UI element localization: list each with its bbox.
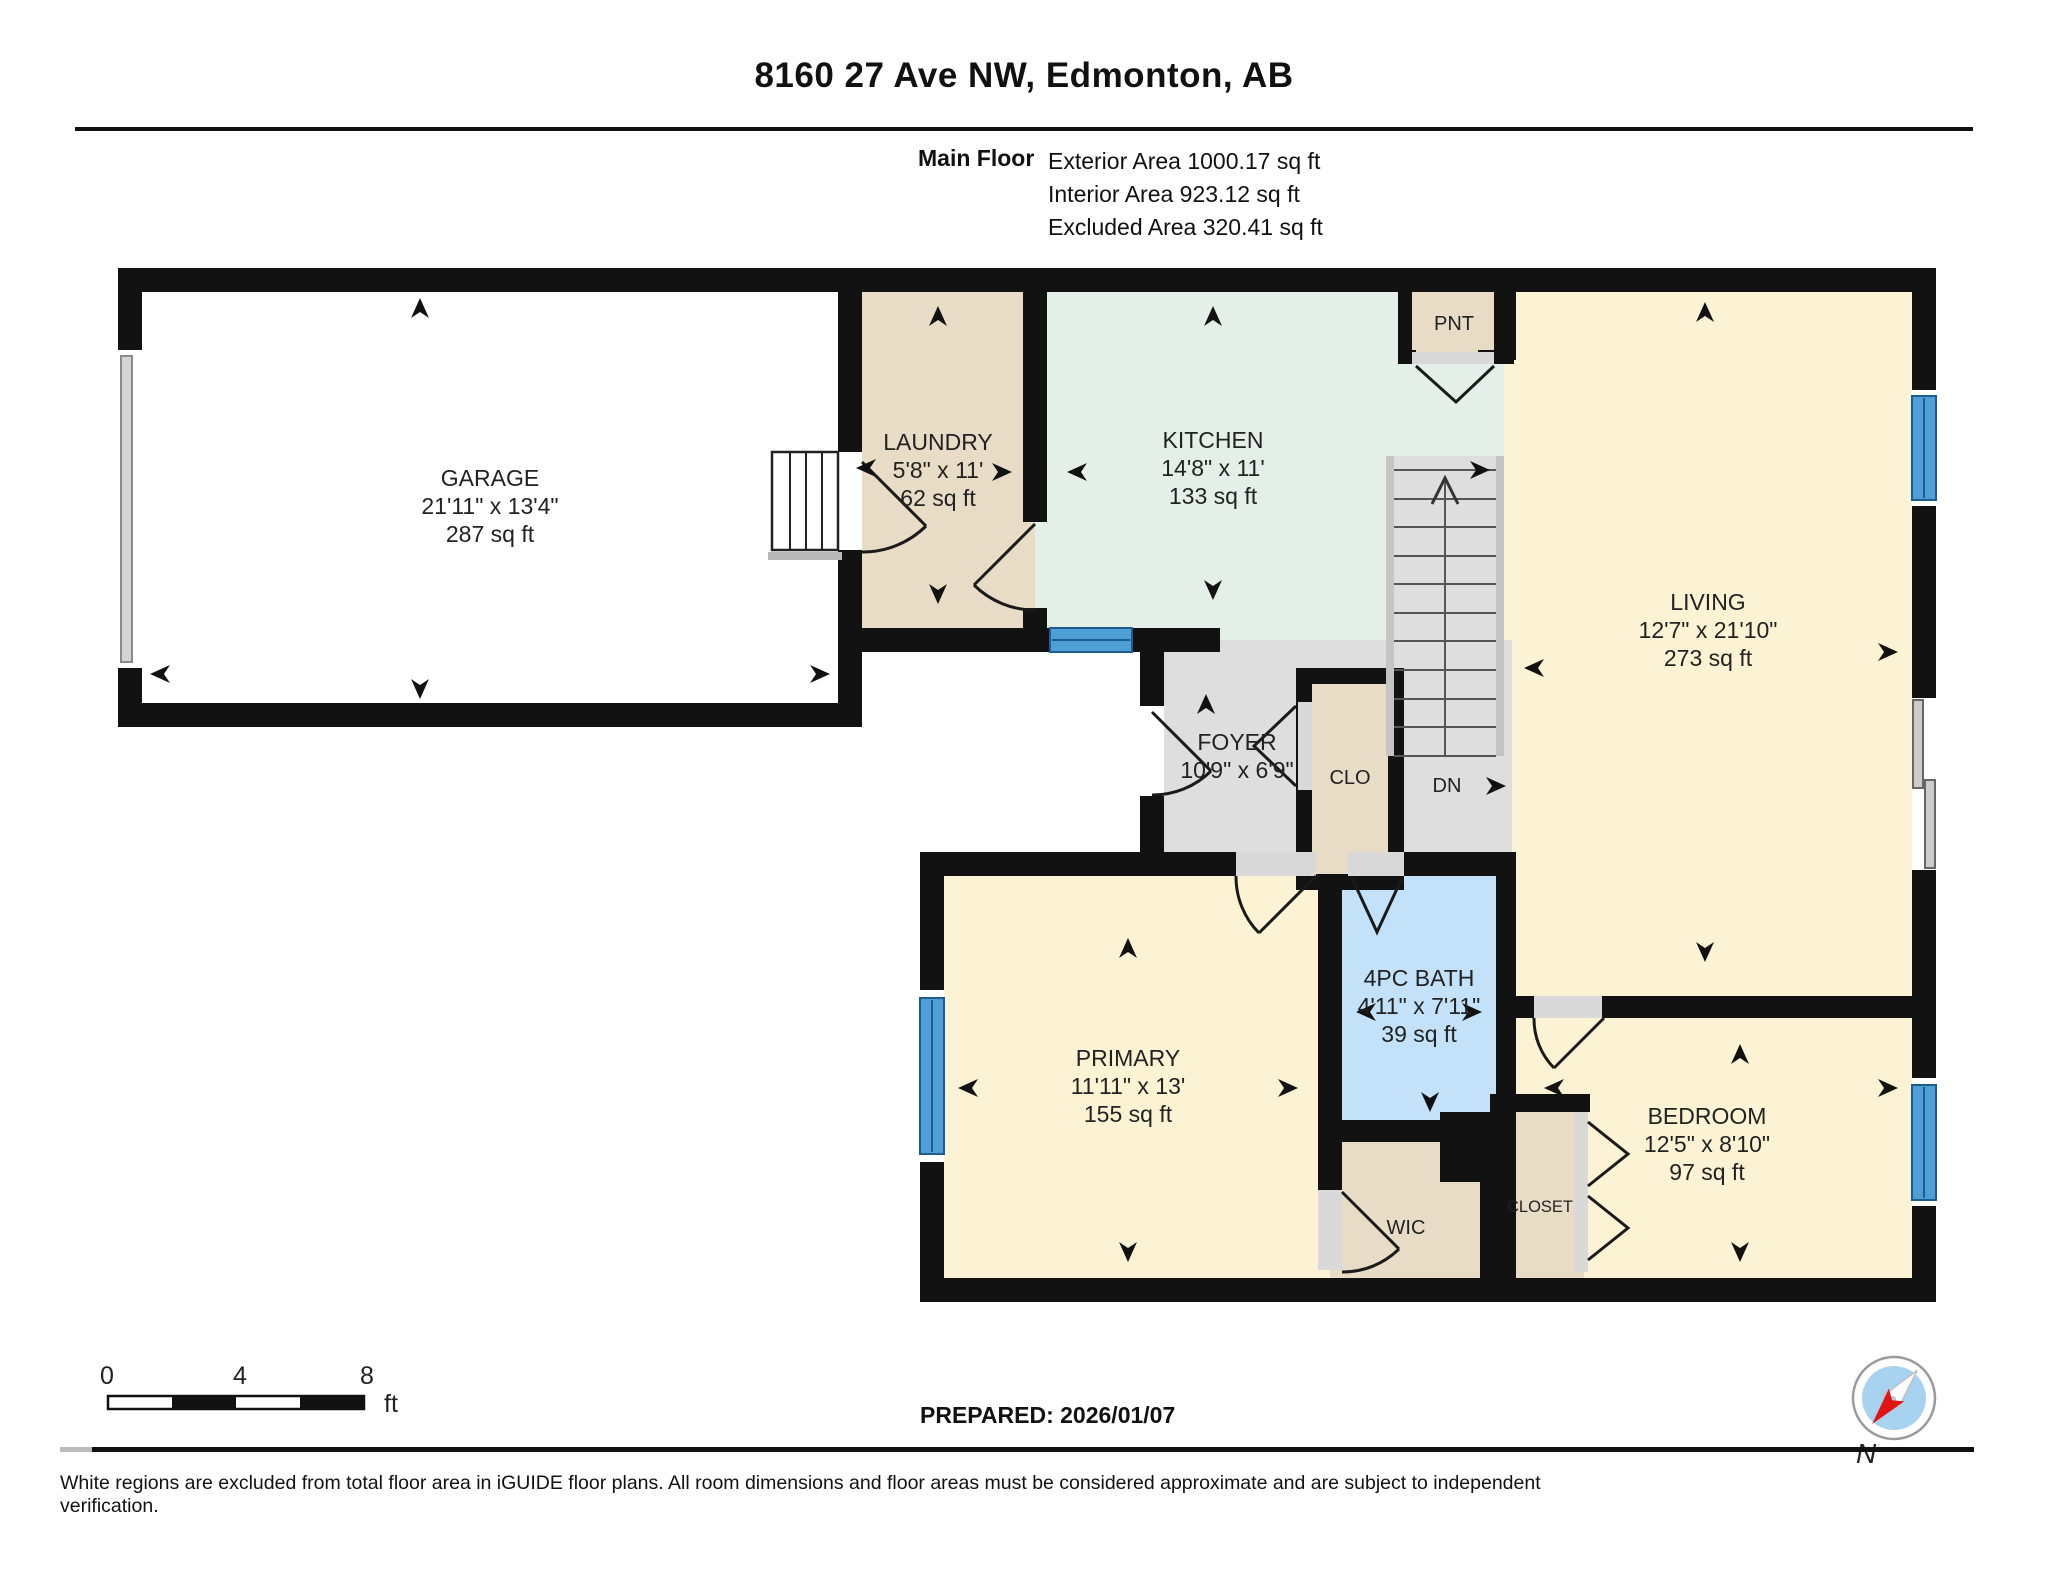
- scale-bar: 0 4 8 ft: [100, 1358, 430, 1438]
- svg-text:273 sq ft: 273 sq ft: [1664, 645, 1753, 671]
- svg-text:287 sq ft: 287 sq ft: [446, 521, 535, 547]
- bath-label: 4PC BATH: [1364, 965, 1475, 991]
- sliding-door-panel-2: [1925, 780, 1935, 868]
- garage-label: GARAGE: [441, 465, 539, 491]
- interior-area: Interior Area 923.12 sq ft: [1048, 178, 1323, 211]
- footer-divider: [92, 1447, 1974, 1452]
- svg-text:10'9" x 6'9": 10'9" x 6'9": [1180, 757, 1293, 783]
- sliding-door-panel-1: [1913, 700, 1923, 788]
- svg-text:97 sq ft: 97 sq ft: [1669, 1159, 1745, 1185]
- bedroom-closet-label: CLOSET: [1507, 1198, 1573, 1216]
- area-summary: Exterior Area 1000.17 sq ft Interior Are…: [1048, 145, 1323, 244]
- page-title: 8160 27 Ave NW, Edmonton, AB: [0, 56, 2048, 96]
- entry-steps: [768, 452, 842, 560]
- svg-text:12'7" x 21'10": 12'7" x 21'10": [1639, 617, 1778, 643]
- compass-icon: N: [1838, 1342, 1954, 1472]
- stairs-down-label: DN: [1433, 775, 1462, 797]
- pantry-label: PNT: [1434, 313, 1474, 335]
- title-divider: [75, 127, 1973, 131]
- compass-north-label: N: [1856, 1438, 1877, 1469]
- scale-end: 8: [360, 1362, 374, 1390]
- kitchen-label: KITCHEN: [1163, 427, 1264, 453]
- svg-text:14'8" x 11': 14'8" x 11': [1161, 455, 1264, 481]
- living-label: LIVING: [1670, 589, 1745, 615]
- svg-text:4'11" x 7'11": 4'11" x 7'11": [1358, 993, 1481, 1019]
- wic-label: WIC: [1387, 1217, 1426, 1239]
- svg-text:39 sq ft: 39 sq ft: [1381, 1021, 1457, 1047]
- garage-door: [121, 356, 132, 662]
- scale-start: 0: [100, 1362, 114, 1390]
- svg-text:12'5" x 8'10": 12'5" x 8'10": [1644, 1131, 1770, 1157]
- disclaimer-text: White regions are excluded from total fl…: [60, 1472, 1620, 1518]
- floor-plan: GARAGE 21'11" x 13'4" 287 sq ft LAUNDRY …: [0, 240, 2048, 1360]
- prepared-date: PREPARED: 2026/01/07: [920, 1402, 1175, 1429]
- floor-name: Main Floor: [918, 145, 1034, 172]
- foyer-closet-label: CLO: [1329, 767, 1370, 789]
- svg-text:11'11" x 13': 11'11" x 13': [1071, 1073, 1186, 1099]
- footer-divider-light: [60, 1447, 92, 1452]
- scale-mid: 4: [233, 1362, 247, 1390]
- floor-plan-page: 8160 27 Ave NW, Edmonton, AB Main Floor …: [0, 0, 2048, 1583]
- svg-text:62 sq ft: 62 sq ft: [900, 485, 976, 511]
- svg-text:155 sq ft: 155 sq ft: [1084, 1101, 1173, 1127]
- foyer-label: FOYER: [1197, 729, 1276, 755]
- svg-text:133 sq ft: 133 sq ft: [1169, 483, 1258, 509]
- scale-unit: ft: [384, 1390, 398, 1418]
- laundry-label: LAUNDRY: [883, 429, 993, 455]
- living-room: [1504, 280, 1924, 1008]
- exterior-area: Exterior Area 1000.17 sq ft: [1048, 145, 1323, 178]
- svg-text:5'8" x 11': 5'8" x 11': [893, 457, 984, 483]
- primary-label: PRIMARY: [1076, 1045, 1180, 1071]
- svg-text:21'11" x 13'4": 21'11" x 13'4": [421, 493, 558, 519]
- bedroom-label: BEDROOM: [1648, 1103, 1767, 1129]
